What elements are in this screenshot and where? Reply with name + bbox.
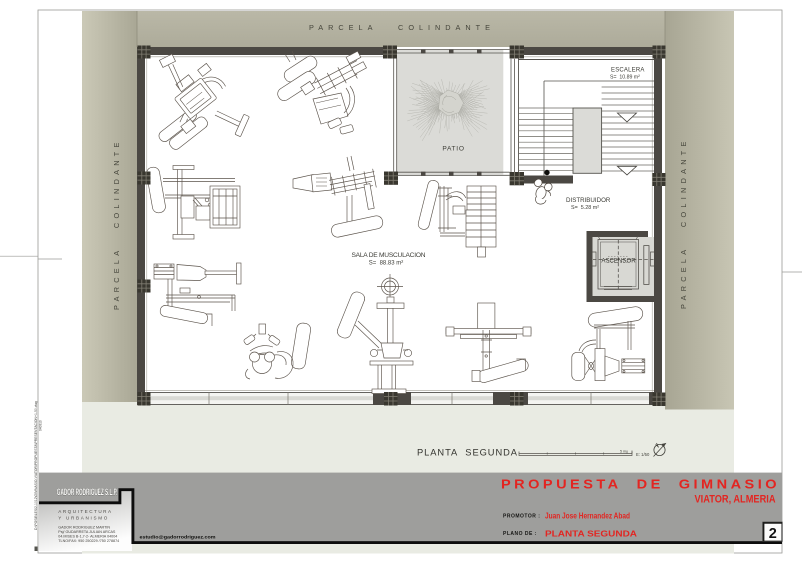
svg-text:PROPUESTA DE GIMNASIO: PROPUESTA DE GIMNASIO: [501, 478, 780, 492]
svg-text:GADOR RODRIGUEZ S.L.P.: GADOR RODRIGUEZ S.L.P.: [57, 486, 118, 497]
svg-text:PROMOTOR :: PROMOTOR :: [503, 514, 540, 520]
svg-text:040810: 040810: [39, 420, 43, 431]
svg-text:S= 10.89 m²: S= 10.89 m²: [610, 74, 640, 80]
svg-text:Psj/ GUDARRETA JULIAN ARCAS: Psj/ GUDARRETA JULIAN ARCAS: [58, 530, 116, 534]
svg-text:ESCALERA: ESCALERA: [611, 67, 645, 73]
svg-text:SALA DE MUSCULACION: SALA DE MUSCULACION: [352, 252, 426, 259]
svg-text:Juan Jose Hernandez Abad: Juan Jose Hernandez Abad: [545, 512, 630, 521]
svg-text:PARCELA COLINDANTE: PARCELA COLINDANTE: [112, 140, 121, 310]
svg-text:PLANTA SEGUNDA: PLANTA SEGUNDA: [545, 529, 637, 539]
svg-text:PARCELA COLINDANTE: PARCELA COLINDANTE: [679, 139, 688, 309]
svg-text:Y URBANISMO: Y URBANISMO: [58, 516, 109, 521]
svg-text:DISTRIBUIDOR: DISTRIBUIDOR: [566, 197, 611, 204]
svg-text:PLANO DE :: PLANO DE :: [503, 531, 537, 537]
svg-text:D:\POSIBLES\2-1012\GIMNASIO-VI: D:\POSIBLES\2-1012\GIMNASIO-VIATOR\PROPU…: [34, 401, 38, 530]
svg-text:5 m: 5 m: [620, 450, 626, 454]
svg-text:ASCENSOR: ASCENSOR: [601, 258, 636, 265]
svg-text:S= 5.28 m²: S= 5.28 m²: [571, 205, 599, 211]
svg-text:ARQUITECTURA: ARQUITECTURA: [58, 509, 112, 514]
svg-text:04.MISES B-1,7-2- ALMERIA 0400: 04.MISES B-1,7-2- ALMERIA 04004: [58, 535, 117, 539]
svg-text:PATIO: PATIO: [442, 145, 464, 152]
svg-text:TLNO/FAX: 950 250229 /750 2788: TLNO/FAX: 950 250229 /750 278874: [58, 539, 119, 543]
svg-text:E: 1/50: E: 1/50: [636, 452, 650, 457]
svg-text:S= 88.83 m²: S= 88.83 m²: [369, 261, 404, 267]
svg-text:estudio@gadorrodriguez.com: estudio@gadorrodriguez.com: [140, 534, 216, 539]
svg-text:PLANTA SEGUNDA: PLANTA SEGUNDA: [417, 447, 519, 457]
svg-text:GADOR RODRIGUEZ MARTIN: GADOR RODRIGUEZ MARTIN: [58, 526, 110, 530]
svg-text:VIATOR, ALMERIA: VIATOR, ALMERIA: [695, 494, 776, 506]
svg-text:2: 2: [769, 526, 777, 542]
